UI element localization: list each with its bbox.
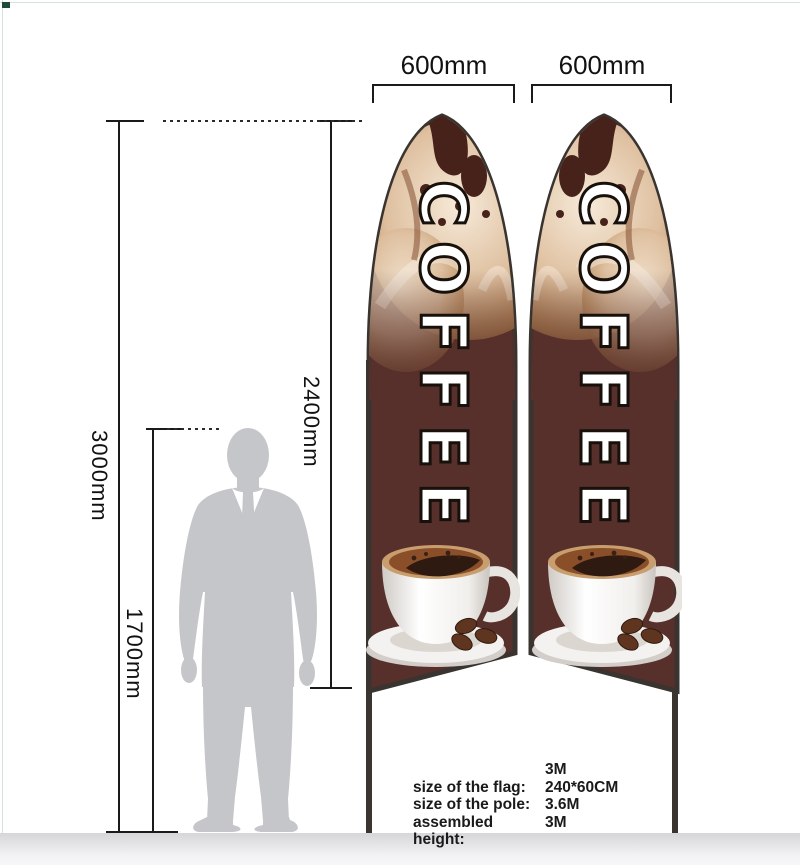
spec-row-pole-size: size of the pole: 3.6M — [413, 796, 673, 814]
dim-bracket-right-tick-a — [531, 84, 533, 103]
dim-tick-3000-bottom — [106, 831, 144, 833]
spec-text-block: 3M size of the flag: 240*60CM size of th… — [413, 761, 673, 849]
ground-shadow-band — [0, 833, 800, 865]
page-edge-left — [2, 0, 3, 865]
left-flag-coffee-text: COFFEE — [403, 180, 481, 572]
spec-row-assembled-height: assembled height: 3M — [413, 814, 673, 849]
spec-value: 3M — [545, 814, 673, 849]
dim-label-right-flag-width: 600mm — [530, 50, 674, 81]
dim-bracket-left-tick-b — [513, 84, 515, 103]
spec-label — [413, 761, 545, 779]
dim-tick-3000-top — [106, 120, 144, 122]
dim-line-3000 — [118, 121, 120, 833]
dim-line-1700 — [152, 429, 154, 833]
product-spec-diagram: 3000mm 2400mm 1700mm — [0, 0, 800, 865]
spec-label: size of the pole: — [413, 796, 545, 814]
dim-bracket-left-tick-a — [372, 84, 374, 103]
dim-label-person-height: 1700mm — [121, 588, 147, 720]
dim-bracket-right — [531, 84, 672, 86]
spec-row-assembled-short: 3M — [413, 761, 673, 779]
corner-mark — [2, 2, 10, 8]
page-edge-top — [0, 2, 800, 3]
spec-value: 240*60CM — [545, 779, 673, 797]
dim-dotted-flag-top — [163, 120, 366, 122]
spec-row-flag-size: size of the flag: 240*60CM — [413, 779, 673, 797]
dim-label-left-flag-width: 600mm — [372, 50, 516, 81]
dim-bracket-left — [372, 84, 515, 86]
right-flag-coffee-text: COFFEE — [563, 180, 641, 572]
spec-label: size of the flag: — [413, 779, 545, 797]
spec-label: assembled height: — [413, 814, 545, 849]
person-silhouette — [163, 427, 333, 833]
dim-bracket-right-tick-b — [670, 84, 672, 103]
spec-value: 3.6M — [545, 796, 673, 814]
spec-value: 3M — [545, 761, 673, 779]
dim-label-total-height: 3000mm — [86, 412, 112, 540]
